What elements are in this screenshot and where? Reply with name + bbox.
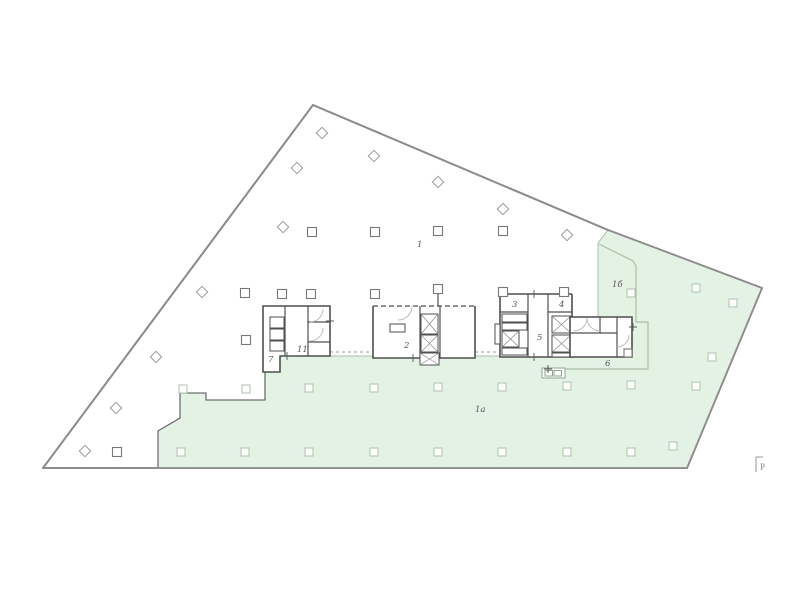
room-label: 7 — [268, 355, 274, 365]
corner-column — [624, 349, 632, 357]
stair-flight — [270, 329, 284, 340]
column — [563, 448, 571, 456]
column — [499, 288, 508, 297]
column — [241, 448, 249, 456]
column — [307, 290, 316, 299]
room-label: 5 — [537, 333, 542, 343]
column — [627, 381, 635, 389]
column — [305, 384, 313, 392]
column — [434, 383, 442, 391]
room-label: 2 — [403, 341, 409, 351]
column — [434, 285, 443, 294]
floor-plan-svg: 1234567111а1б P — [0, 0, 800, 601]
column — [498, 383, 506, 391]
stair-flight — [502, 323, 527, 330]
room-label: 1б — [612, 279, 623, 290]
column — [242, 385, 250, 393]
parking-marker: P — [756, 457, 765, 472]
column — [560, 288, 569, 297]
column — [179, 385, 187, 393]
column — [692, 284, 700, 292]
stair-flight — [270, 341, 284, 351]
floor-plan: 1234567111а1б P — [0, 0, 800, 601]
column — [370, 448, 378, 456]
column — [729, 299, 737, 307]
column — [278, 290, 287, 299]
column — [308, 228, 317, 237]
column — [370, 384, 378, 392]
column — [241, 289, 250, 298]
parking-marker-label: P — [760, 462, 765, 472]
column — [498, 448, 506, 456]
room-label: 1а — [475, 405, 485, 415]
room-label: 6 — [605, 359, 611, 369]
column — [242, 336, 251, 345]
column — [177, 448, 185, 456]
column — [627, 448, 635, 456]
stair-flight — [270, 317, 284, 328]
column — [499, 227, 508, 236]
column — [371, 290, 380, 299]
column — [669, 442, 677, 450]
column — [692, 382, 700, 390]
room-label: 4 — [558, 300, 564, 310]
stair-flight — [502, 348, 527, 355]
column — [434, 227, 443, 236]
room-label: 3 — [512, 300, 517, 310]
column — [708, 353, 716, 361]
column — [305, 448, 313, 456]
duct — [495, 324, 500, 344]
stair-flight — [502, 314, 527, 322]
fixture — [390, 324, 405, 332]
column — [627, 289, 635, 297]
column — [434, 448, 442, 456]
room-label: 1 — [417, 240, 422, 250]
column — [371, 228, 380, 237]
column — [563, 382, 571, 390]
room-label: 11 — [297, 345, 308, 355]
column — [113, 448, 122, 457]
